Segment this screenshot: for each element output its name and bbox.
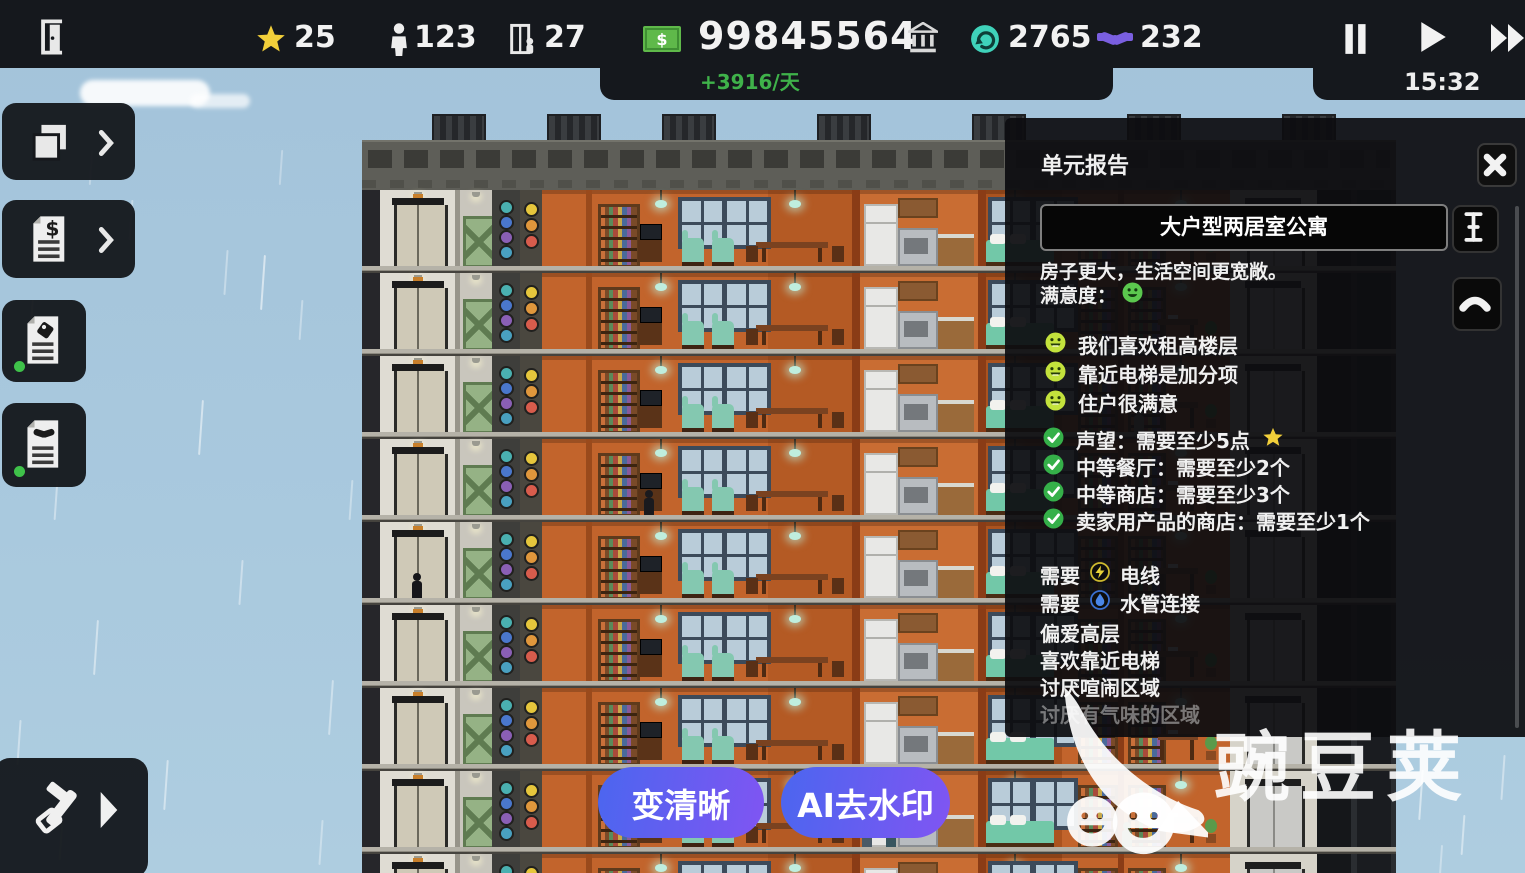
sidebar-overlays-button[interactable] [2,103,135,180]
requirement-item: 声望：需要至少5点 [1043,426,1370,453]
rain-streak [93,620,99,675]
rain-streak [318,820,323,865]
unit-report-panel: 单元报告 大户型两居室公寓 房子更大，生活空间更宽敞。 满意度： 我们喜欢租高楼… [1005,118,1525,737]
satisfaction-smiley-icon [1122,282,1143,308]
rain-streak [279,150,283,185]
pause-button[interactable] [1342,22,1370,60]
need-label: 需要 [1040,588,1080,617]
rename-button[interactable] [1452,205,1499,253]
check-circle-icon [1043,427,1064,453]
rain-streak [1461,815,1466,855]
deals-value: 232 [1140,20,1203,55]
rain-streak [223,250,228,295]
materials-icon [970,24,1000,58]
money-per-day: +3916/天 [700,66,800,95]
panel-title: 单元报告 [1041,148,1129,180]
requirement-list: 声望：需要至少5点中等餐厅：需要至少2个中等商店：需要至少3个卖家用产品的商店：… [1043,426,1370,534]
population-icon [388,22,410,60]
sidebar-contracts-button[interactable] [2,403,86,487]
svg-text:$: $ [656,30,667,49]
fast-forward-button[interactable] [1490,22,1525,58]
rain-streak [328,680,334,735]
close-button[interactable] [1477,143,1517,187]
population-value: 123 [414,20,477,55]
need-label: 需要 [1040,560,1080,589]
game-clock: 15:32 [1404,68,1480,96]
rain-streak [163,760,168,810]
layers-icon [28,121,72,167]
satisfaction-label: 满意度： [1040,281,1116,308]
mood-item: 我们喜欢租高楼层 [1045,330,1238,359]
trait-item: 讨厌有气味的区域 [1040,699,1200,726]
rain-streak [238,560,243,605]
cloud [190,94,250,108]
ai-remove-watermark-button[interactable]: AI去水印 [781,767,950,838]
move-ins-value: 27 [544,20,586,55]
sidebar-leases-button[interactable] [2,300,86,382]
chevron-right-icon [96,129,116,161]
reputation-value: 25 [294,20,336,55]
requirement-item: 中等商店：需要至少3个 [1043,480,1370,507]
rain-streak [1418,770,1423,820]
happy-smiley-icon [1045,390,1066,416]
contract-handshake-icon [22,418,66,474]
happy-smiley-icon [1045,332,1066,358]
unit-name-input[interactable]: 大户型两居室公寓 [1040,204,1448,251]
mood-text: 我们喜欢租高楼层 [1078,330,1238,359]
unit-description: 房子更大，生活空间更宽敞。 [1040,257,1287,284]
star-icon [1262,426,1284,453]
person-figure [644,498,654,515]
requirement-text: 卖家用产品的商店：需要至少1个 [1076,506,1370,535]
person-figure [412,581,422,598]
requirement-text: 中等餐厅：需要至少2个 [1076,452,1290,481]
enter-building-icon[interactable] [34,18,70,60]
need-text: 电线 [1120,560,1160,589]
rain-streak [349,480,354,520]
satisfaction-row: 满意度： [1040,281,1143,308]
requirement-text: 声望：需要至少5点 [1076,425,1250,454]
chevron-right-icon [96,226,116,258]
sidebar-finances-button[interactable]: $ [2,200,135,278]
requirement-text: 中等商店：需要至少3个 [1076,479,1290,508]
materials-value: 2765 [1008,20,1092,55]
mood-text: 靠近电梯是加分项 [1078,359,1238,388]
mood-item: 住户很满意 [1045,388,1238,417]
svg-text:$: $ [45,216,59,240]
rain-streak [260,255,266,310]
handshake-icon [1096,24,1134,58]
mood-list: 我们喜欢租高楼层靠近电梯是加分项住户很满意 [1045,330,1238,417]
rain-streak [299,300,304,340]
rain-streak [1500,755,1505,800]
power-icon [1090,562,1110,587]
move-ins-icon [508,22,538,60]
notification-dot [14,361,25,372]
happy-smiley-icon [1045,361,1066,387]
trait-item: 讨厌喧闹区域 [1040,672,1200,699]
construction-tools-icon [30,780,92,846]
panel-scrollbar[interactable] [1515,206,1519,728]
rain-streak [1439,845,1443,873]
trait-list: 偏爱高层喜欢靠近电梯讨厌喧闹区域讨厌有气味的区域 [1040,618,1200,726]
trait-item: 偏爱高层 [1040,618,1200,645]
needs-list: 需要电线需要水管连接 [1040,560,1200,616]
requirement-item: 中等餐厅：需要至少2个 [1043,453,1370,480]
lease-tag-icon [22,314,66,370]
notification-dot [14,466,25,477]
enhance-button[interactable]: 变清晰 [598,767,764,838]
need-text: 水管连接 [1120,588,1200,617]
need-item: 需要水管连接 [1040,588,1200,616]
requirement-item: 卖家用产品的商店：需要至少1个 [1043,507,1370,534]
check-circle-icon [1043,454,1064,480]
game-screen: 25 123 27 $ 99845564 +3916/天 2765 232 15… [0,0,1525,873]
need-item: 需要电线 [1040,560,1200,588]
bank-icon[interactable] [908,22,938,58]
check-circle-icon [1043,508,1064,534]
cash-icon: $ [642,25,682,57]
expand-arrow-icon [98,792,120,832]
build-menu-button[interactable] [0,758,148,873]
mood-item: 靠近电梯是加分项 [1045,359,1238,388]
person-figure [1122,830,1132,847]
play-button[interactable] [1418,20,1448,58]
collapse-button[interactable] [1452,277,1502,331]
water-icon [1090,590,1110,615]
building-floor [362,854,1396,873]
money-value: 99845564 [698,14,918,58]
finance-report-icon: $ [28,214,72,268]
text-cursor-icon [1454,207,1493,247]
check-circle-icon [1043,481,1064,507]
mood-text: 住户很满意 [1078,388,1178,417]
star-icon [256,24,286,58]
trait-item: 喜欢靠近电梯 [1040,645,1200,672]
rain-streak [198,400,204,455]
